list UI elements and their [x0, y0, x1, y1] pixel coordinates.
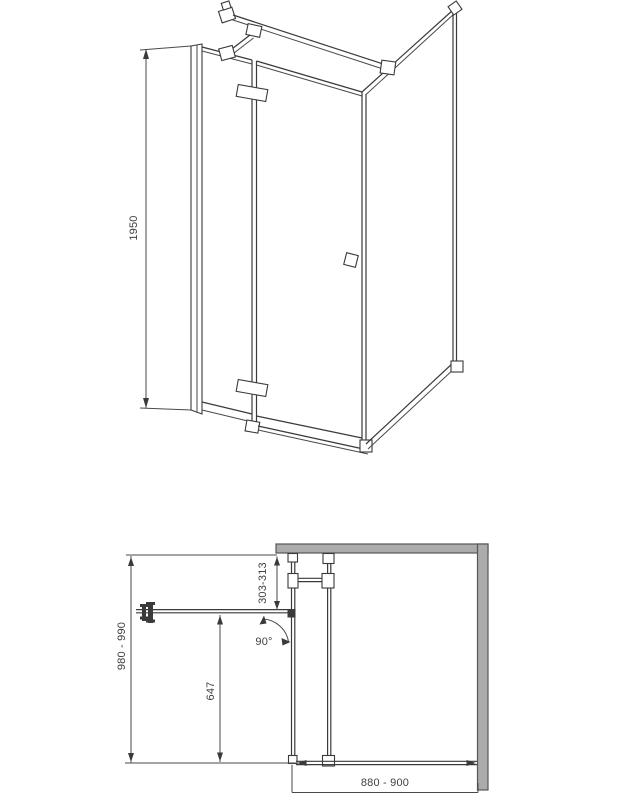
- bottom-rail: [258, 426, 372, 454]
- hinge-stile: [252, 60, 257, 425]
- support-arm-right-clamp: [322, 574, 334, 589]
- support-bar-wall-clamp-plan: [323, 554, 334, 564]
- wall-profile-block: [288, 554, 298, 563]
- support-bar-wall-clamp: [218, 7, 235, 23]
- wall-top: [276, 544, 488, 553]
- door-angle-label: 90°: [255, 636, 272, 648]
- support-arm-left-clamp: [288, 574, 298, 589]
- corner-foot: [360, 440, 372, 452]
- height-dimension-label: 1950: [128, 215, 140, 240]
- front-view: 1950: [128, 1, 463, 454]
- wall-profile: [191, 44, 202, 414]
- side-panel-foot: [451, 361, 463, 372]
- drawing-canvas: 1950: [0, 0, 636, 800]
- door-swing-arc: 90°: [255, 616, 290, 649]
- fixed-segment-dimension: 303-313: [257, 557, 280, 611]
- support-bar: [218, 1, 395, 75]
- fixed-segment-dimension-label: 303-313: [257, 562, 269, 604]
- door-length-dimension-label: 647: [205, 682, 217, 701]
- support-bar-tee-block: [246, 24, 262, 38]
- plan-view: 90° 980 - 990 647 303-313: [116, 544, 488, 793]
- support-bar-glass-clamp: [219, 45, 236, 60]
- technical-drawing: 1950: [0, 0, 636, 800]
- support-bar-side-clamp: [380, 60, 396, 75]
- hinge-top: [236, 84, 268, 101]
- bottom-pivot-block: [245, 420, 260, 433]
- corner-connector-block: [289, 756, 298, 764]
- depth-dimension: 980 - 990: [116, 555, 296, 763]
- hinge-bottom: [236, 379, 268, 396]
- width-dimension-label: 880 - 900: [361, 777, 409, 789]
- height-dimension: 1950: [128, 46, 191, 410]
- depth-dimension-label: 980 - 990: [116, 622, 128, 670]
- open-door-plan: [136, 602, 289, 623]
- door-length-dimension: 647: [205, 615, 223, 762]
- side-panel: [362, 1, 463, 449]
- wall-right: [478, 544, 489, 790]
- door-handle-knob: [344, 253, 359, 268]
- fixed-panel: [202, 47, 252, 422]
